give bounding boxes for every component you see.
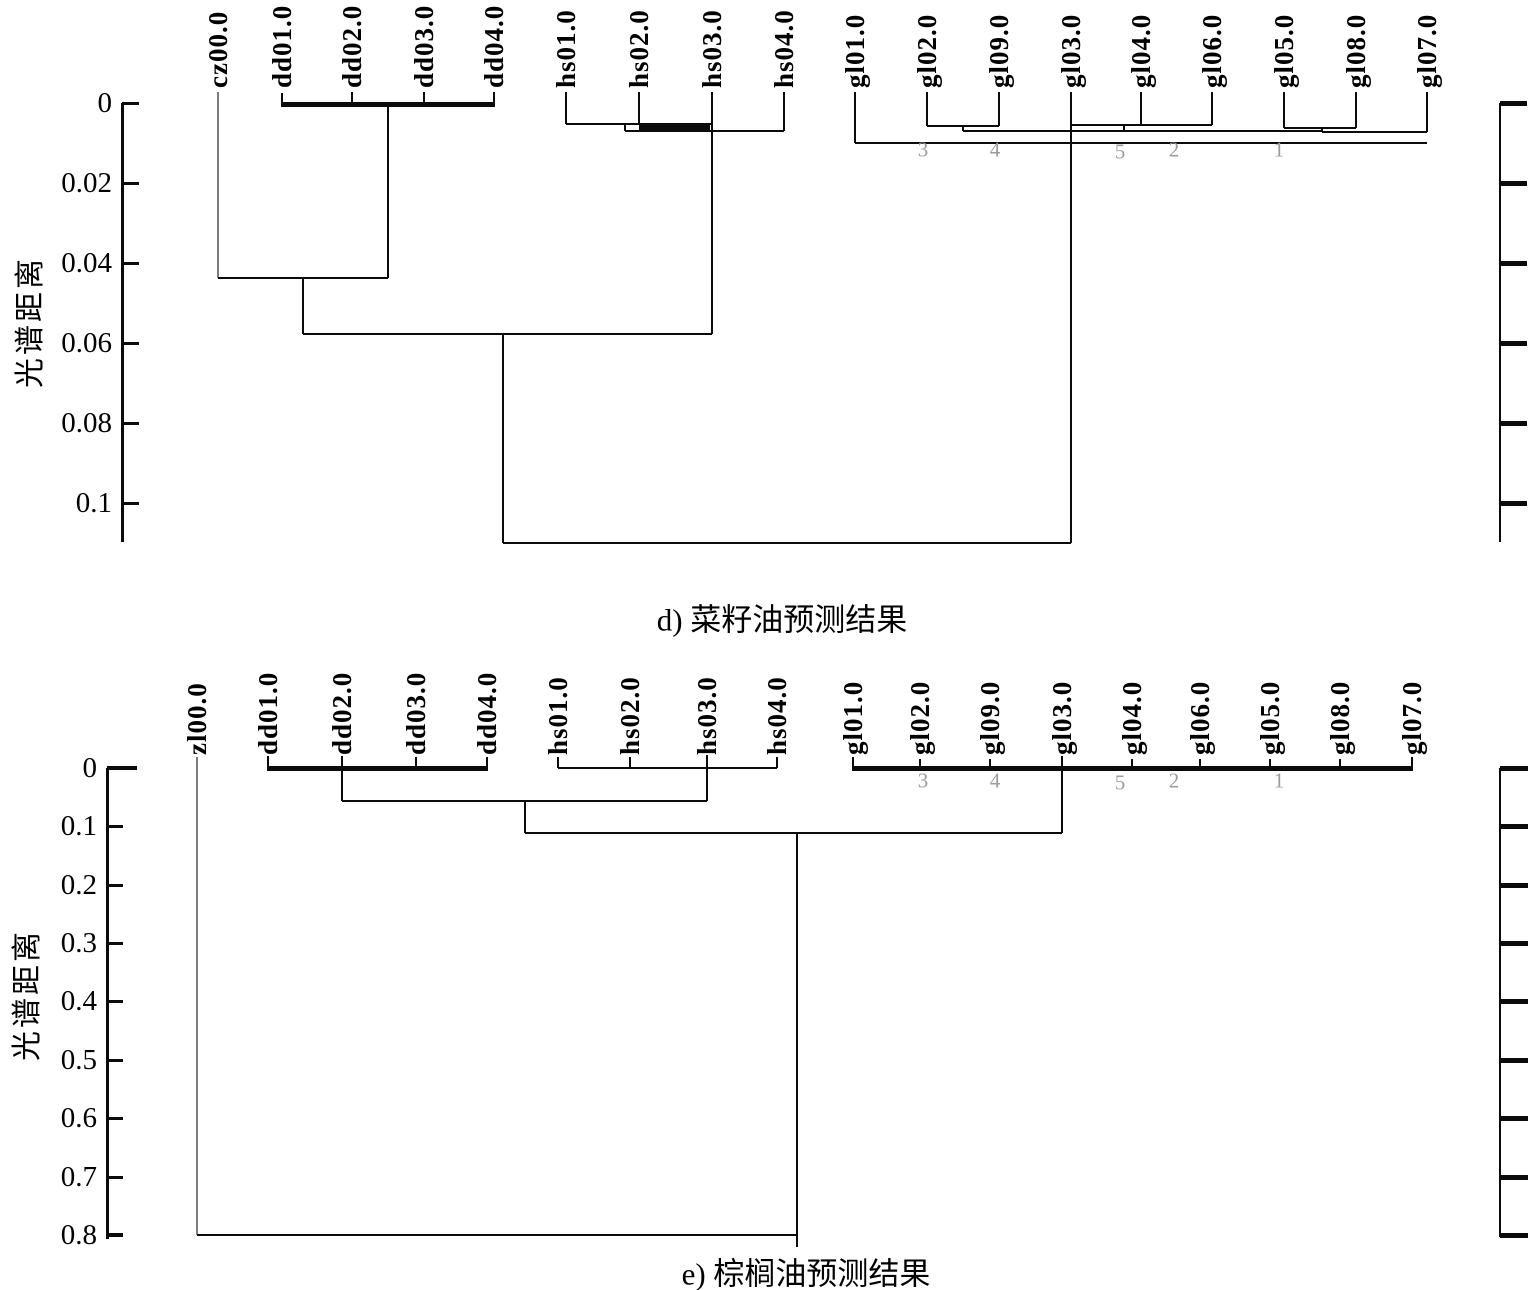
right-axis-tick bbox=[1500, 999, 1528, 1004]
leaf-label: gl02.0 bbox=[906, 681, 934, 755]
y-axis-tick bbox=[107, 825, 123, 828]
right-axis-tick bbox=[1500, 1175, 1528, 1180]
leaf-label: hs01.0 bbox=[544, 676, 572, 755]
dendro-line bbox=[1061, 768, 1064, 833]
leaf-label: gl01.0 bbox=[839, 681, 867, 755]
cluster-number: 3 bbox=[918, 769, 929, 794]
y-axis-tick bbox=[107, 942, 123, 945]
dendro-line bbox=[196, 757, 198, 1235]
y-tick-label: 0.2 bbox=[2, 870, 97, 900]
dendro-line bbox=[267, 766, 488, 771]
y-tick-label: 0.5 bbox=[2, 1045, 97, 1075]
right-axis-tick bbox=[1500, 766, 1528, 771]
dendro-line bbox=[558, 767, 777, 769]
dendro-line bbox=[852, 766, 1413, 771]
right-axis-tick bbox=[1500, 824, 1528, 829]
leaf-label: gl04.0 bbox=[1118, 681, 1146, 755]
y-axis-tick bbox=[107, 1059, 123, 1062]
right-axis-tick bbox=[1500, 1116, 1528, 1121]
y-axis-line bbox=[106, 768, 109, 1239]
dendro-line bbox=[341, 768, 344, 801]
dendro-line bbox=[197, 1234, 797, 1237]
cluster-number: 5 bbox=[1115, 771, 1126, 796]
leaf-label: gl09.0 bbox=[976, 681, 1004, 755]
y-axis-tick bbox=[107, 1000, 123, 1003]
y-tick-label: 0.4 bbox=[2, 986, 97, 1016]
leaf-label: hs03.0 bbox=[693, 676, 721, 755]
right-axis-tick bbox=[1500, 1233, 1528, 1238]
leaf-label: dd04.0 bbox=[473, 672, 501, 755]
y-tick-label: 0 bbox=[2, 753, 97, 783]
dendro-line bbox=[525, 832, 1062, 835]
cluster-number: 4 bbox=[990, 769, 1001, 794]
y-tick-label: 0.1 bbox=[2, 811, 97, 841]
right-axis-tick bbox=[1500, 883, 1528, 888]
dendro-line bbox=[796, 833, 799, 1247]
leaf-label: dd01.0 bbox=[254, 672, 282, 755]
y-axis-tick bbox=[107, 884, 123, 887]
leaf-label: gl06.0 bbox=[1186, 681, 1214, 755]
cluster-number: 2 bbox=[1169, 769, 1180, 794]
dendro-line bbox=[706, 755, 709, 801]
y-axis-tick bbox=[107, 1176, 123, 1179]
y-axis-tick bbox=[107, 766, 137, 770]
leaf-label: gl08.0 bbox=[1326, 681, 1354, 755]
leaf-label: gl03.0 bbox=[1048, 681, 1076, 755]
right-axis-tick bbox=[1500, 941, 1528, 946]
leaf-label: zl00.0 bbox=[183, 682, 211, 755]
y-axis-tick bbox=[107, 1233, 123, 1237]
leaf-label: gl05.0 bbox=[1256, 681, 1284, 755]
y-tick-label: 0.7 bbox=[2, 1162, 97, 1192]
y-tick-label: 0.8 bbox=[2, 1220, 97, 1250]
figure-dendrograms: 光谱距离 d) 菜籽油预测结果 cz00.0dd01.0dd02.0dd03.0… bbox=[0, 0, 1531, 1290]
y-axis-tick bbox=[107, 1117, 123, 1120]
leaf-label: hs02.0 bbox=[616, 676, 644, 755]
dendro-line bbox=[524, 801, 527, 833]
dendrogram-palm-oil: 光谱距离 e) 棕榈油预测结果 zl00.0dd01.0dd02.0dd03.0… bbox=[0, 0, 1531, 1290]
leaf-label: dd03.0 bbox=[402, 672, 430, 755]
y-tick-label: 0.3 bbox=[2, 928, 97, 958]
leaf-label: gl07.0 bbox=[1398, 681, 1426, 755]
leaf-label: dd02.0 bbox=[328, 672, 356, 755]
leaf-label: hs04.0 bbox=[763, 676, 791, 755]
chart-title-palm: e) 棕榈油预测结果 bbox=[682, 1249, 931, 1290]
cluster-number: 1 bbox=[1274, 769, 1285, 794]
y-tick-label: 0.6 bbox=[2, 1103, 97, 1133]
right-axis-tick bbox=[1500, 1058, 1528, 1063]
